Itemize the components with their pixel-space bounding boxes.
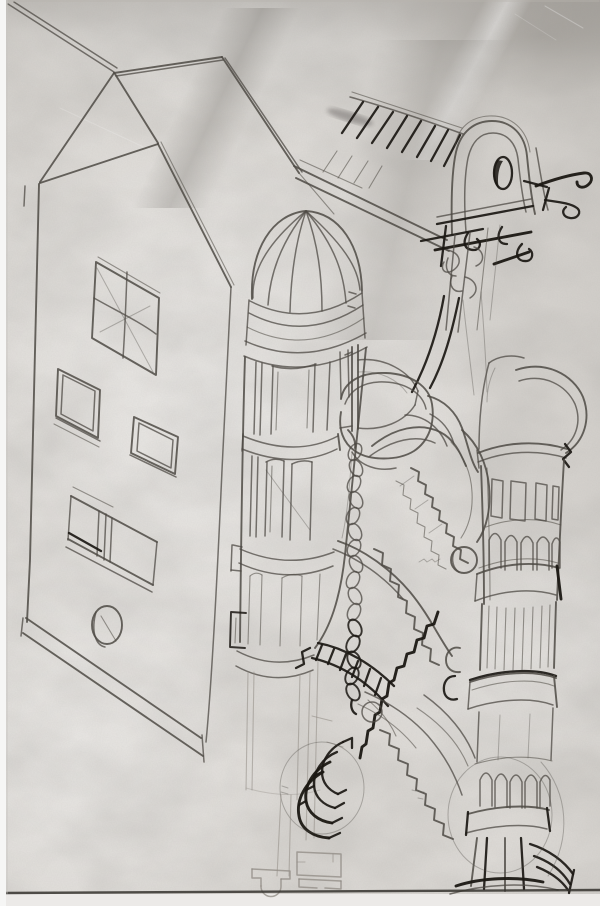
sketch-drawing	[0, 0, 600, 906]
scan-left-margin	[0, 0, 6, 906]
scanned-sketch-photo	[0, 0, 600, 906]
